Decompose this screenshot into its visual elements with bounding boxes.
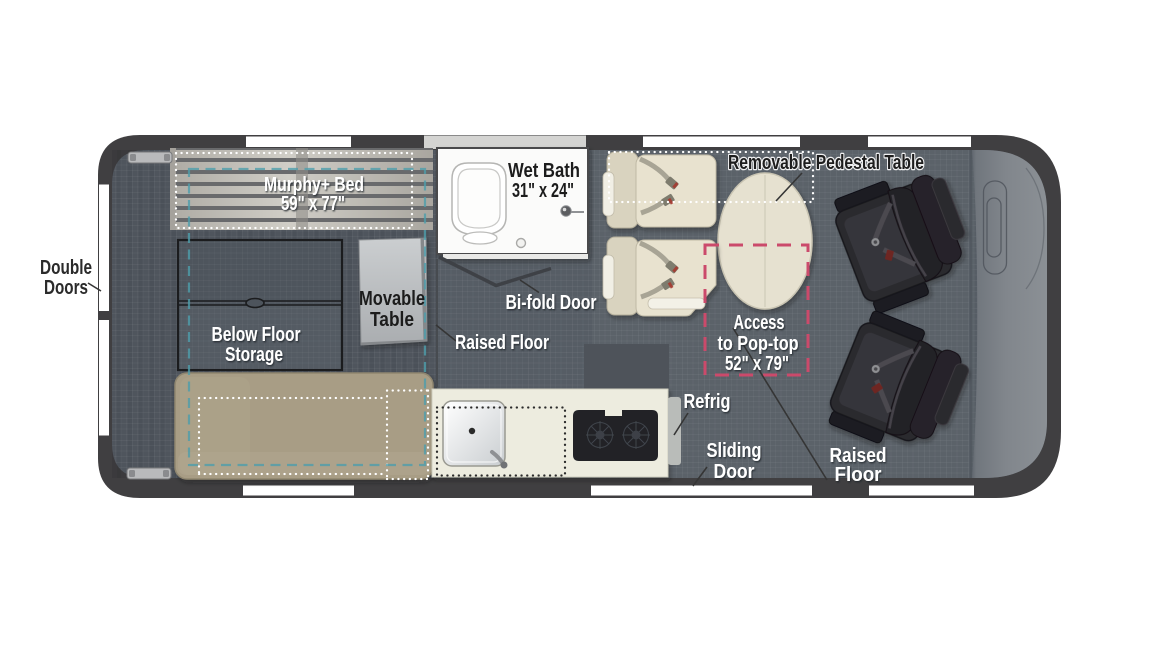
- svg-text:to Pop-top: to Pop-top: [718, 333, 799, 355]
- svg-text:52" x 79": 52" x 79": [725, 353, 789, 375]
- svg-text:31" x 24": 31" x 24": [512, 180, 574, 202]
- svg-text:Bi-fold Door: Bi-fold Door: [506, 292, 597, 314]
- svg-text:Refrig: Refrig: [684, 391, 731, 413]
- svg-text:Removable Pedestal Table: Removable Pedestal Table: [728, 152, 924, 174]
- svg-text:Wet Bath: Wet Bath: [508, 160, 580, 182]
- svg-text:Sliding: Sliding: [707, 440, 762, 462]
- svg-text:Movable: Movable: [359, 288, 425, 310]
- svg-text:Table: Table: [370, 309, 414, 331]
- svg-text:Doors: Doors: [44, 277, 88, 299]
- svg-text:59" x 77": 59" x 77": [281, 193, 345, 215]
- svg-text:Double: Double: [40, 257, 92, 279]
- svg-text:Door: Door: [714, 461, 755, 483]
- svg-text:Floor: Floor: [835, 464, 882, 486]
- svg-text:Raised Floor: Raised Floor: [455, 332, 549, 354]
- svg-text:Access: Access: [734, 312, 785, 334]
- svg-text:Storage: Storage: [225, 344, 283, 366]
- svg-text:Below Floor: Below Floor: [212, 324, 301, 346]
